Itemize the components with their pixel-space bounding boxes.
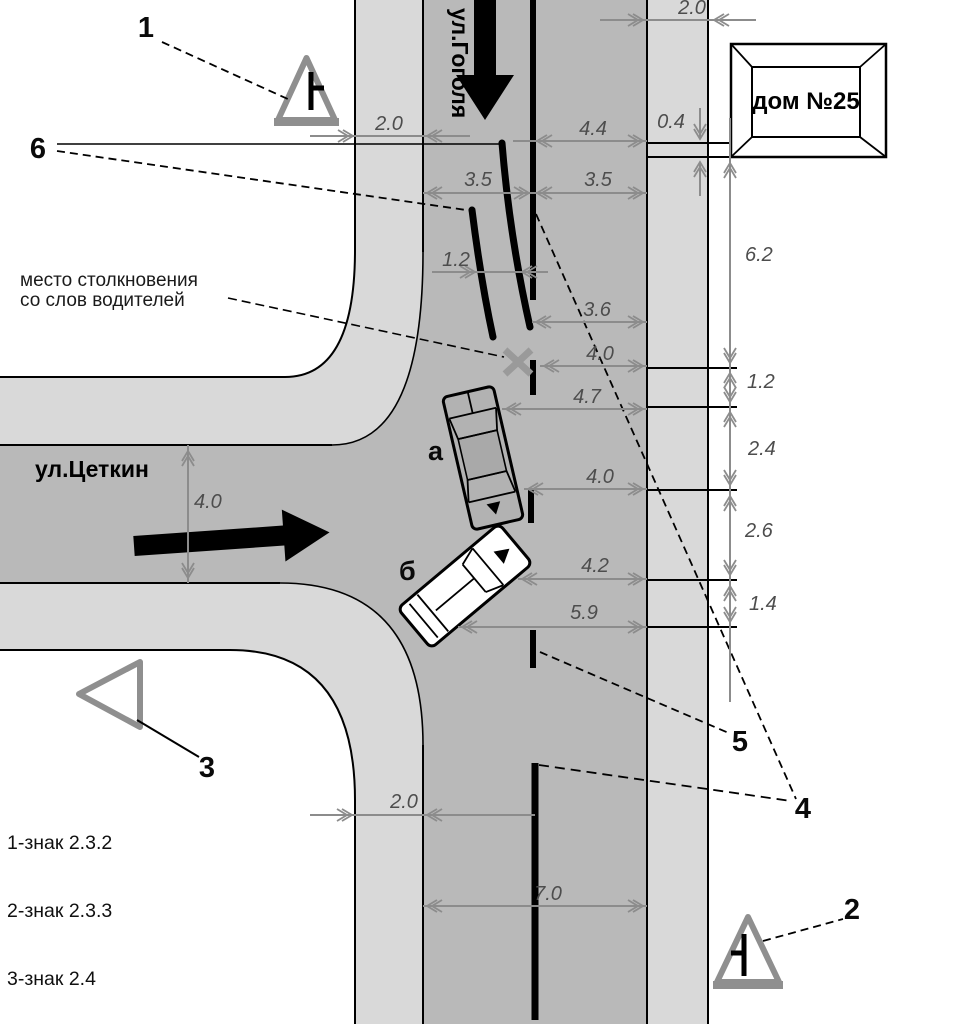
street-label-tsetkin: ул.Цеткин [35, 456, 149, 482]
dim-lane-left: 3.5 [464, 169, 493, 191]
dim-center-to-edge-top: 4.4 [579, 118, 607, 140]
dim-chain-seg2: 2.4 [747, 438, 776, 460]
dim-impact-to-edge: 4.0 [586, 343, 614, 365]
collision-note-line2: со слов водителей [20, 290, 185, 311]
dim-sidewalk-bottom: 2.0 [389, 791, 418, 813]
dim-chain-seg1: 1.2 [747, 371, 775, 393]
street-label-gogolya: ул.Гоголя [447, 8, 473, 118]
callout-3: 3 [199, 752, 215, 784]
callout-2: 2 [844, 894, 860, 926]
legend-line: 3-знак 2.4 [7, 968, 311, 991]
dim-skid-track: 1.2 [442, 249, 470, 271]
callout-1: 1 [138, 12, 154, 44]
dim-carriageway-width: 7.0 [534, 883, 562, 905]
dim-skid-to-edge: 3.6 [583, 299, 612, 321]
dim-sidewalk-top-right: 2.0 [677, 0, 706, 19]
legend: 1-знак 2.3.2 2-знак 2.3.3 3-знак 2.4 4-р… [7, 787, 311, 1024]
dim-car-b-rear: 5.9 [570, 602, 598, 624]
sign-2-4-yield-triangle [79, 662, 140, 727]
sign-2-3-2 [274, 58, 339, 122]
dim-lane-right: 3.5 [584, 169, 613, 191]
dim-chain-seg3: 2.6 [744, 520, 774, 542]
dim-car-a-rear: 4.0 [586, 466, 614, 488]
callout-6: 6 [30, 133, 46, 165]
sidewalk-fillet-bottom [230, 650, 355, 800]
dim-house-offset: 0.4 [657, 111, 685, 133]
leader-sign2 [763, 919, 843, 941]
legend-line: 2-знак 2.3.3 [7, 900, 311, 923]
accident-scheme: дом №25 [0, 0, 965, 1024]
house-label: дом №25 [752, 88, 859, 115]
sign2-triangle [717, 917, 779, 982]
dim-car-b-front: 4.2 [581, 555, 609, 577]
callout-4: 4 [795, 793, 811, 825]
legend-line: 1-знак 2.3.2 [7, 832, 311, 855]
callout-car-b: б [399, 556, 416, 586]
sidewalk-fillet-top [285, 250, 355, 377]
leader-sign1 [162, 42, 290, 100]
leader-sign3 [137, 720, 199, 757]
house-25: дом №25 [731, 44, 886, 157]
dim-car-a-front: 4.7 [573, 386, 602, 408]
sign-2-3-3 [713, 917, 783, 985]
dim-chain-seg4: 1.4 [749, 593, 777, 615]
callout-car-a: а [428, 436, 444, 466]
sign1-triangle [278, 58, 335, 120]
callout-5: 5 [732, 726, 748, 758]
collision-note-line1: место столкновения [20, 270, 198, 291]
dim-sidewalk-top-left: 2.0 [374, 113, 403, 135]
dim-tsetkin-width: 4.0 [194, 491, 222, 513]
dim-chain-house: 6.2 [745, 244, 773, 266]
